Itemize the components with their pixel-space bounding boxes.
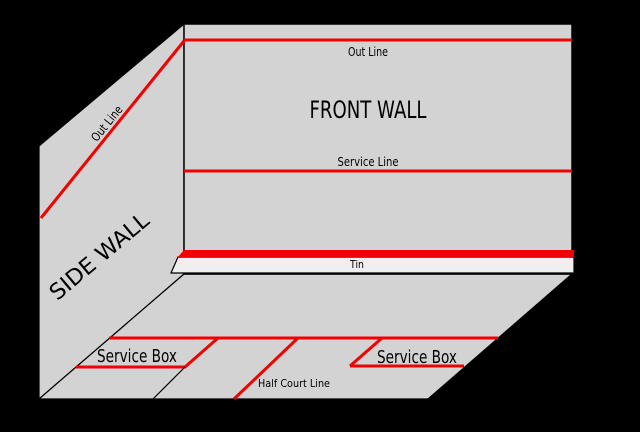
- service-line-label: Service Line: [338, 155, 399, 169]
- half-court-line-label: Half Court Line: [258, 377, 330, 390]
- squash-court-diagram: Out Line FRONT WALL Service Line Tin Out…: [0, 0, 640, 432]
- tin-label: Tin: [349, 258, 364, 271]
- out-line-front-label: Out Line: [348, 45, 388, 59]
- service-box-right-label: Service Box: [377, 347, 457, 368]
- front-wall-title: FRONT WALL: [310, 96, 427, 124]
- tin-board: [171, 257, 574, 273]
- front-wall: [184, 24, 572, 274]
- service-box-left-label: Service Box: [97, 346, 177, 367]
- diagram-canvas: Out Line FRONT WALL Service Line Tin Out…: [0, 0, 640, 432]
- tin-line: [178, 250, 574, 257]
